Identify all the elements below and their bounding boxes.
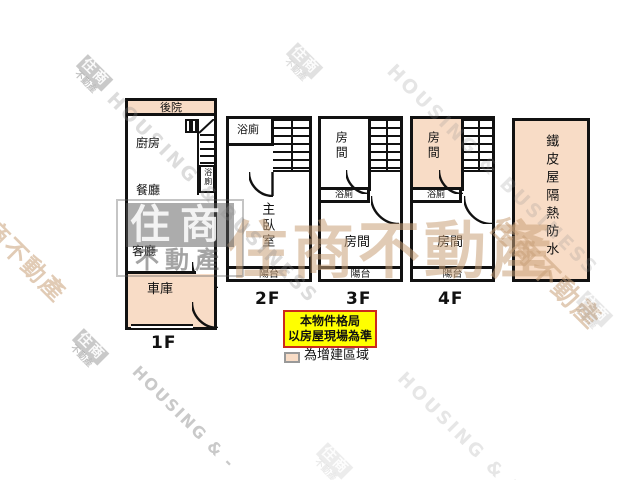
backyard-area: 後院: [128, 101, 214, 116]
bath-2f: 浴廁: [229, 119, 274, 146]
bath-1f-label: 浴廁: [203, 168, 212, 186]
room-lower-4f-label: 房間: [437, 236, 463, 250]
door-swing-arc: [192, 302, 218, 328]
door-swing-arc: [371, 196, 399, 224]
stairs-2f: [273, 119, 309, 172]
brand-logo-main: 住商: [76, 54, 113, 91]
bath-1f: 浴廁: [199, 165, 215, 193]
room-upper-3f-label: 房間: [334, 131, 347, 161]
stairs-3f: [371, 119, 400, 172]
door-swing-arc: [346, 170, 370, 194]
brand-logo-sub: 不動產: [569, 302, 602, 335]
disclaimer-line2: 以房屋現場為準: [288, 329, 372, 344]
english-watermark: HOUSING & -: [129, 362, 240, 473]
annex-legend-swatch: [284, 352, 300, 363]
brand-logo-sub: 不動產: [279, 54, 312, 87]
floorplan-canvas: 後院 浴廁 廚房 餐廳 客廳 車庫 1F 浴廁 主臥室 陽台 2F 房間 浴廁: [0, 0, 640, 480]
brand-logo-main: 住商: [286, 42, 323, 79]
brand-mini-logo-watermark: 住商 不動產: [569, 288, 616, 335]
stair-rail: [291, 119, 293, 170]
floor1-label: 1F: [151, 333, 176, 353]
door-swing-arc: [464, 196, 492, 224]
stairs-4f: [464, 119, 492, 172]
floor2-label: 2F: [255, 289, 280, 309]
door-swing-arc: [249, 172, 274, 197]
dining-label: 餐廳: [136, 184, 160, 197]
floor3-label: 3F: [346, 289, 371, 309]
garage-door: [131, 324, 193, 330]
brand-logo-main: 住商: [72, 328, 109, 365]
brand-logo-sub: 不動產: [309, 454, 342, 480]
metal-roof-label: 鐵皮屋隔熱防水: [543, 134, 557, 260]
room-upper-4f-label: 房間: [426, 131, 439, 161]
floor4-label: 4F: [438, 289, 463, 309]
master-bedroom-label: 主臥室: [259, 202, 273, 250]
disclaimer-line1: 本物件格局: [288, 314, 372, 329]
stairs-1f: [200, 134, 214, 165]
living-label: 客廳: [132, 245, 156, 258]
stair-rail: [478, 119, 480, 170]
balcony-4f: 陽台: [413, 266, 492, 279]
room-lower-3f-label: 房間: [344, 236, 370, 250]
door-swing-arc: [439, 170, 463, 194]
garage-label: 車庫: [147, 283, 173, 297]
brand-logo-sub: 不動產: [69, 66, 102, 99]
kitchen-label: 廚房: [136, 137, 160, 150]
brand-mini-logo-watermark: 住商 不動產: [69, 52, 116, 99]
balcony-3f: 陽台: [321, 266, 400, 279]
annex-legend-label: 為增建區域: [304, 349, 369, 363]
brand-logo-sub: 不動產: [65, 340, 98, 373]
disclaimer-note: 本物件格局 以房屋現場為準: [283, 310, 377, 348]
brand-watermark-diagonal: 住商不動產: [0, 192, 76, 309]
stair-direction-icon: [199, 119, 214, 134]
brand-mini-logo-watermark: 住商 不動產: [309, 440, 356, 480]
brand-mini-logo-watermark: 住商 不動產: [279, 40, 326, 87]
brand-logo-main: 住商: [316, 442, 353, 479]
english-watermark: HOUSING & BUSINESS: [393, 368, 604, 480]
brand-logo-main: 住商: [576, 290, 613, 327]
brand-mini-logo-watermark: 住商 不動產: [65, 326, 112, 373]
stair-rail: [386, 119, 388, 170]
bath-2f-label: 浴廁: [237, 124, 259, 136]
balcony-2f: 陽台: [229, 266, 309, 279]
